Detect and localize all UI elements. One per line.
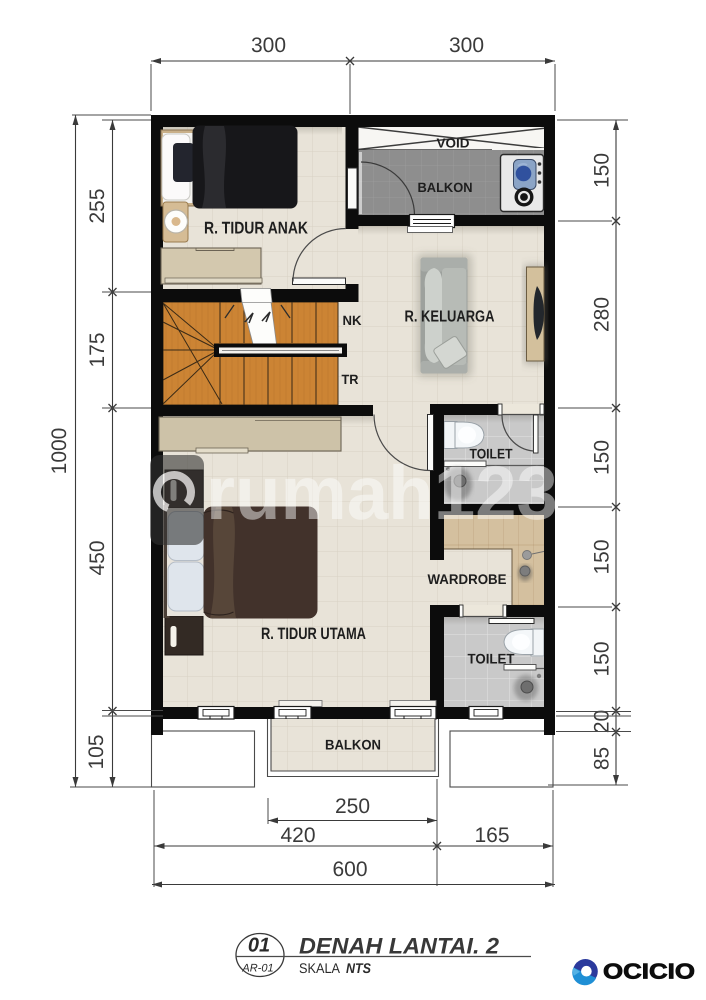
svg-text:AR-01: AR-01: [241, 963, 273, 975]
svg-text:280: 280: [591, 297, 614, 332]
svg-text:WARDROBE: WARDROBE: [428, 571, 507, 587]
svg-text:150: 150: [591, 153, 614, 188]
svg-text:OCICIO: OCICIO: [603, 960, 695, 984]
svg-text:165: 165: [474, 824, 509, 847]
svg-text:BALKON: BALKON: [418, 180, 473, 195]
svg-text:150: 150: [591, 641, 614, 676]
svg-text:R. TIDUR UTAMA: R. TIDUR UTAMA: [261, 625, 366, 643]
svg-text:rumah123: rumah123: [206, 451, 558, 536]
svg-text:150: 150: [591, 440, 614, 475]
svg-text:105: 105: [85, 734, 108, 769]
svg-text:NTS: NTS: [346, 960, 372, 976]
svg-text:255: 255: [86, 188, 109, 223]
svg-text:VOID: VOID: [437, 136, 470, 151]
svg-text:20: 20: [591, 710, 614, 733]
svg-text:NK: NK: [343, 313, 362, 328]
svg-text:250: 250: [335, 795, 370, 818]
svg-text:TR: TR: [342, 372, 359, 387]
svg-text:R. KELUARGA: R. KELUARGA: [405, 309, 495, 326]
svg-text:300: 300: [251, 34, 286, 57]
svg-text:450: 450: [86, 540, 109, 575]
svg-text:300: 300: [449, 34, 484, 57]
svg-text:R. TIDUR ANAK: R. TIDUR ANAK: [204, 219, 309, 238]
svg-text:SKALA: SKALA: [299, 960, 341, 976]
svg-text:TOILET: TOILET: [468, 651, 515, 667]
svg-text:85: 85: [591, 747, 614, 770]
svg-text:420: 420: [280, 824, 315, 847]
svg-text:600: 600: [332, 858, 367, 881]
svg-text:DENAH LANTAI. 2: DENAH LANTAI. 2: [299, 934, 499, 959]
svg-text:BALKON: BALKON: [325, 737, 381, 753]
svg-text:01: 01: [248, 935, 270, 957]
svg-text:1000: 1000: [48, 428, 71, 475]
svg-text:150: 150: [591, 539, 614, 574]
svg-text:175: 175: [86, 332, 109, 367]
